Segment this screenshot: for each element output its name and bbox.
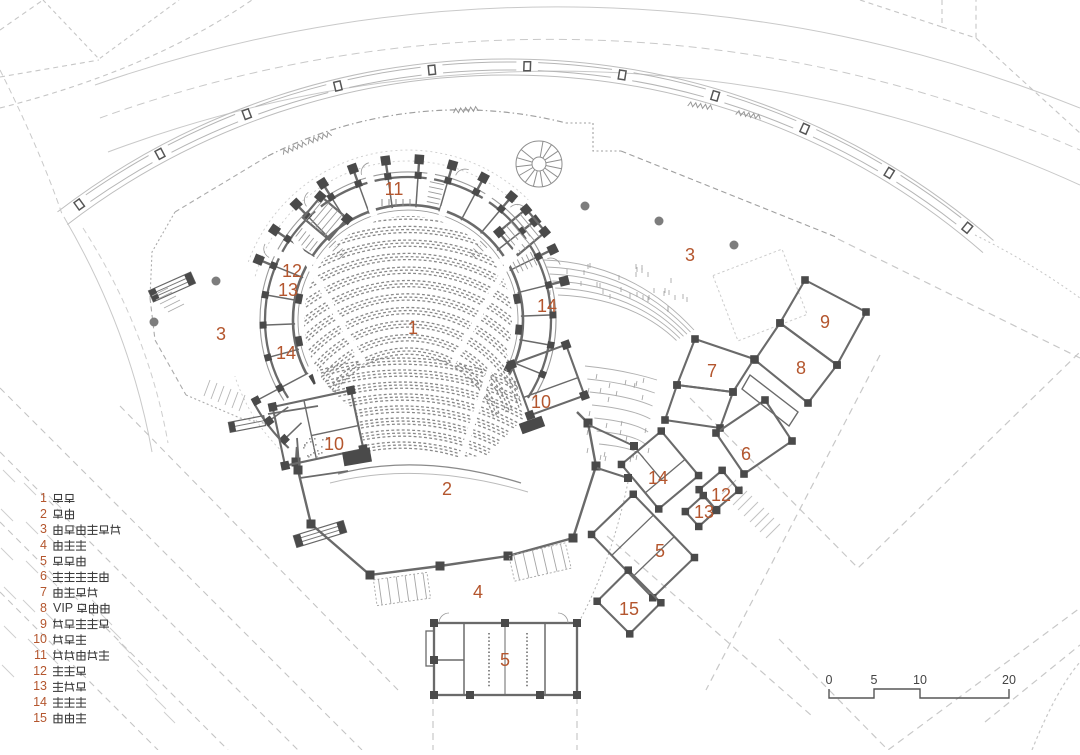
svg-text:6: 6 [40,569,47,583]
svg-text:7: 7 [40,585,47,599]
svg-text:14: 14 [276,343,296,363]
svg-text:8: 8 [796,358,806,378]
svg-text:7: 7 [707,361,717,381]
svg-text:10: 10 [913,673,927,687]
svg-text:11: 11 [34,648,47,662]
svg-text:1: 1 [40,491,47,505]
svg-text:13: 13 [278,280,298,300]
svg-text:15: 15 [619,599,639,619]
svg-text:20: 20 [1002,673,1016,687]
svg-text:10: 10 [531,392,551,412]
svg-text:15: 15 [33,711,47,725]
svg-text:13: 13 [33,679,47,693]
svg-text:10: 10 [33,632,47,646]
svg-text:5: 5 [871,673,878,687]
svg-text:14: 14 [33,695,47,709]
svg-text:14: 14 [537,296,557,316]
svg-text:6: 6 [741,444,751,464]
svg-text:11: 11 [385,179,404,199]
svg-text:12: 12 [282,261,302,281]
svg-text:5: 5 [655,541,665,561]
svg-text:9: 9 [40,617,47,631]
svg-text:2: 2 [442,479,452,499]
svg-text:0: 0 [826,673,833,687]
svg-text:9: 9 [820,312,830,332]
svg-text:13: 13 [694,502,714,522]
svg-text:2: 2 [40,507,47,521]
svg-text:12: 12 [33,664,47,678]
svg-text:3: 3 [685,245,695,265]
svg-text:VIP: VIP [53,601,73,615]
svg-text:4: 4 [473,582,483,602]
svg-text:14: 14 [648,468,668,488]
svg-text:1: 1 [408,318,418,338]
svg-text:8: 8 [40,601,47,615]
svg-text:10: 10 [324,434,344,454]
svg-text:5: 5 [40,554,47,568]
svg-text:3: 3 [216,324,226,344]
svg-text:4: 4 [40,538,47,552]
svg-text:5: 5 [500,650,510,670]
svg-text:3: 3 [40,522,47,536]
